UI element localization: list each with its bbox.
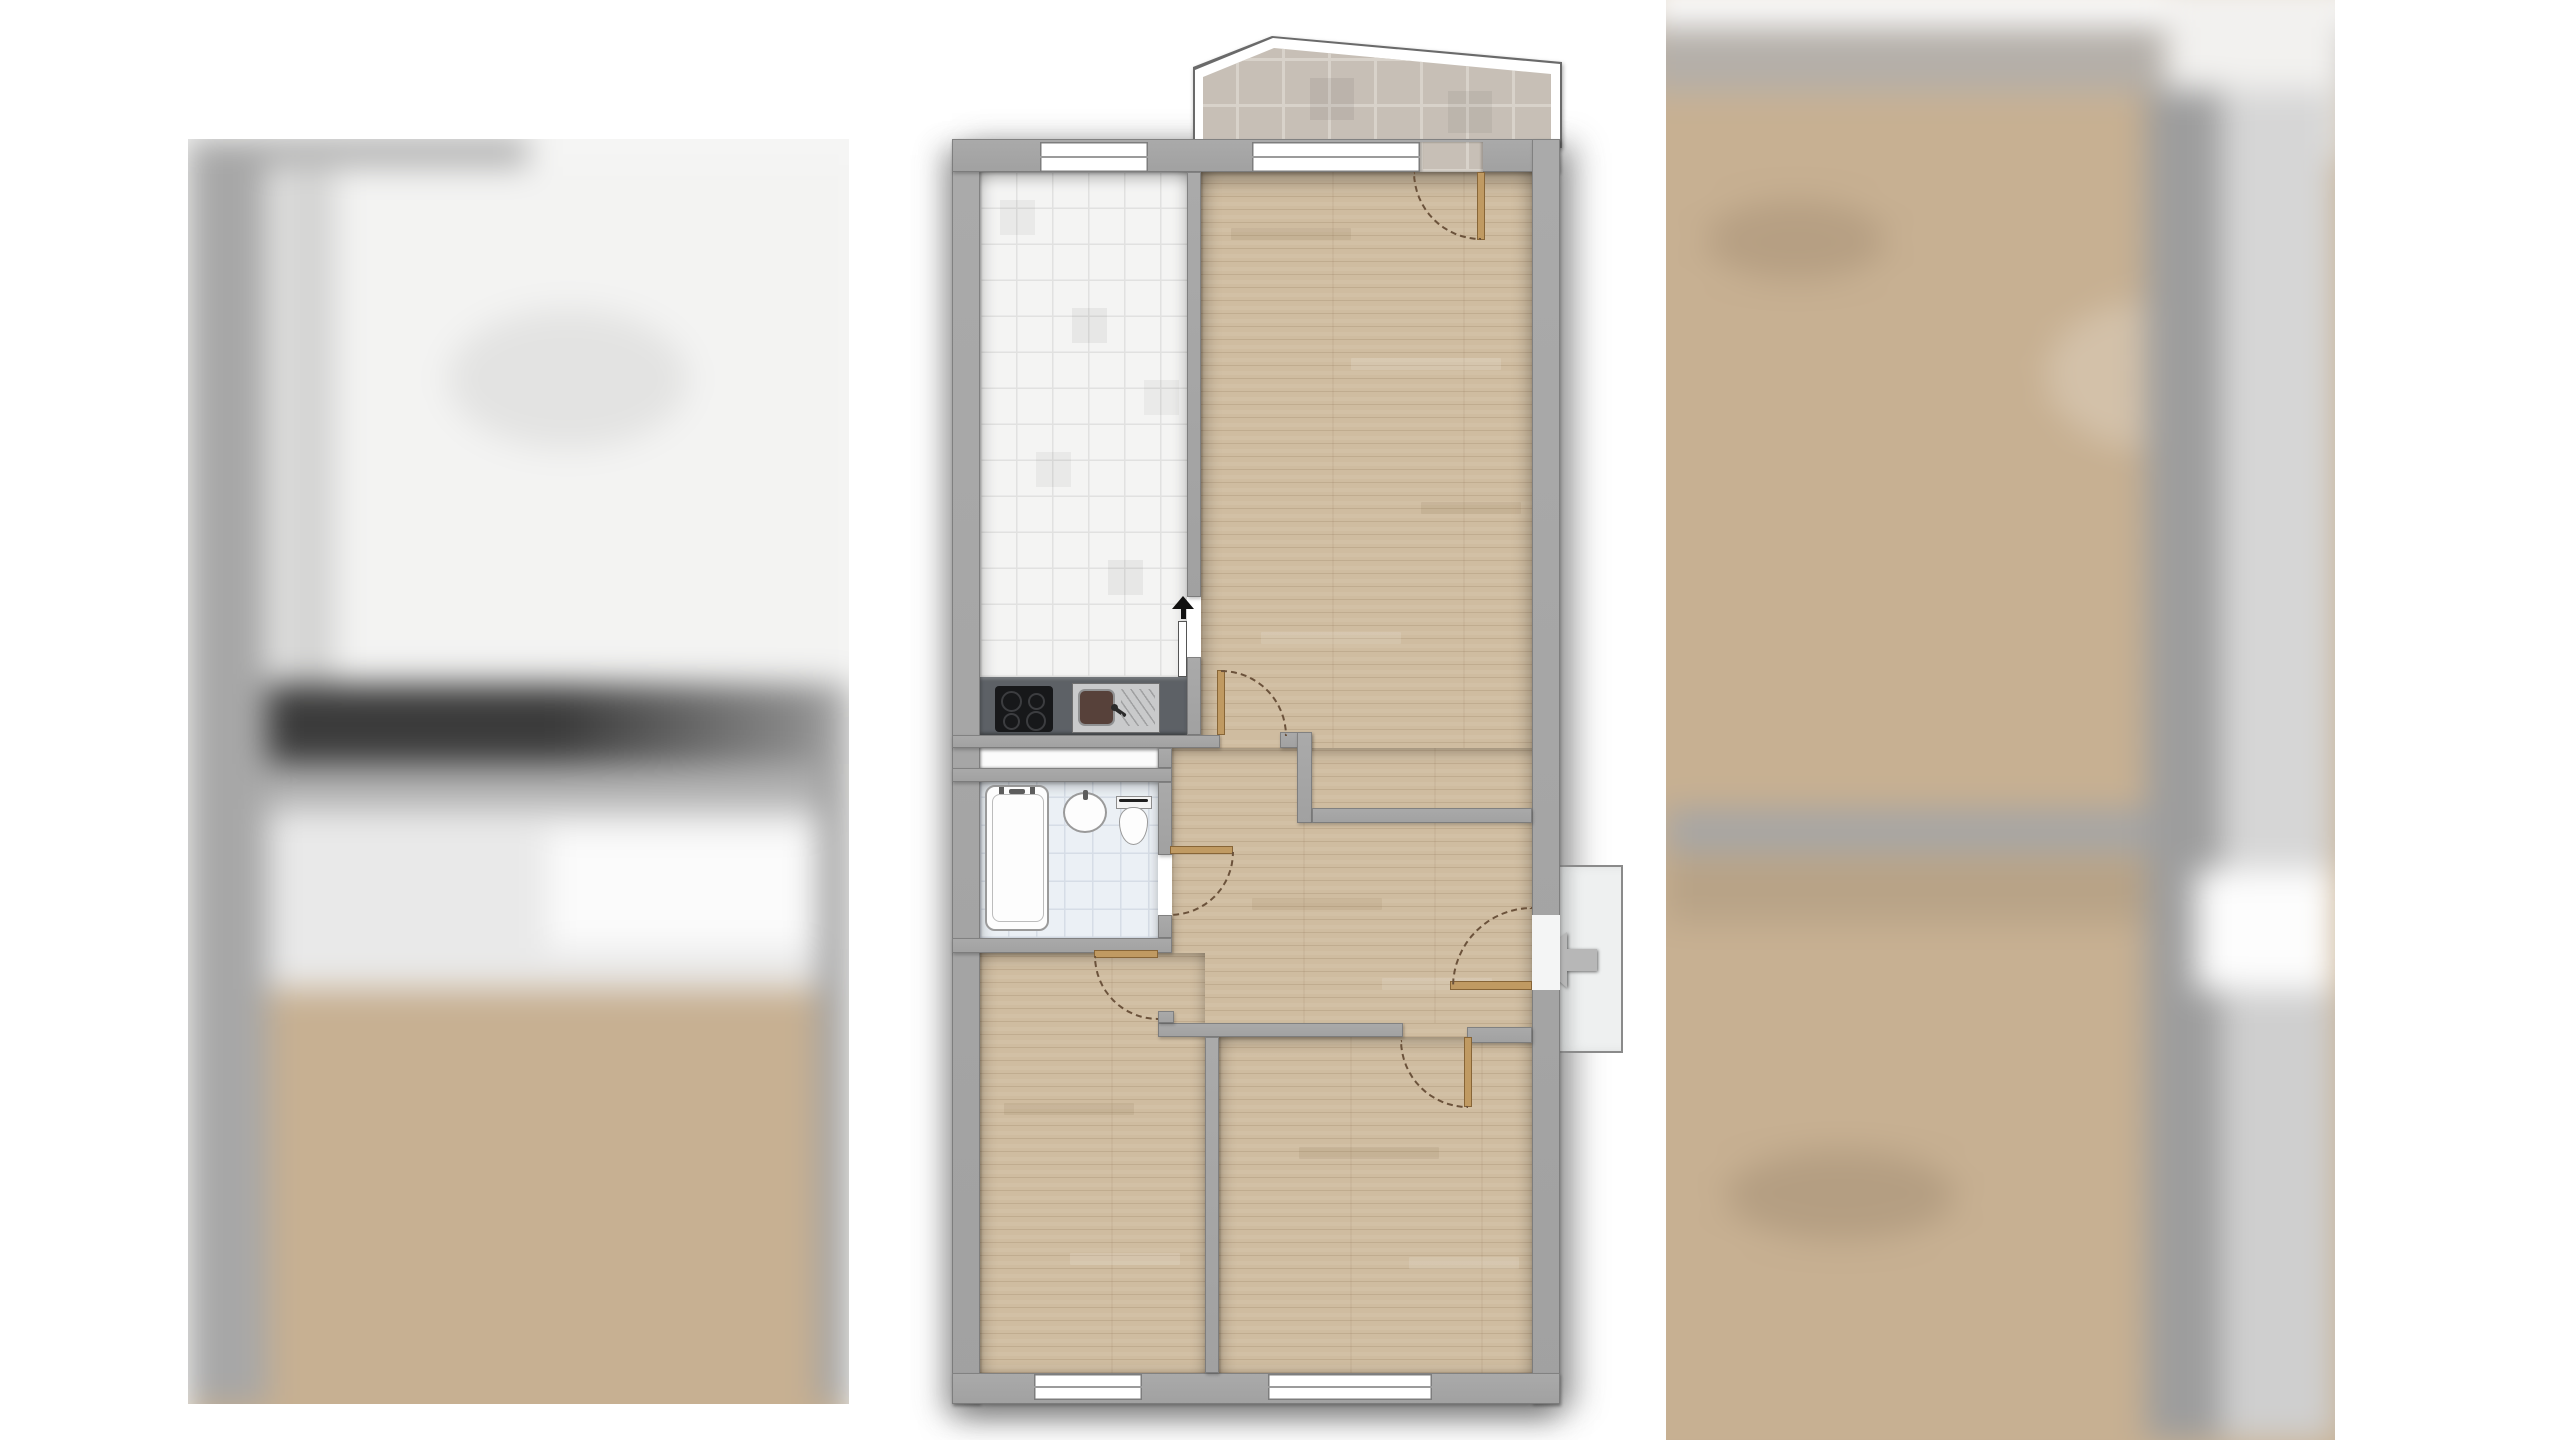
kitchen-counter <box>980 677 1187 735</box>
blur-shape <box>1706 200 1886 280</box>
wall-bottom-rooms-divider <box>1205 1037 1219 1373</box>
kitchen-tile-accent <box>1108 560 1143 595</box>
window-glass-line <box>1040 156 1148 158</box>
wall-living-step-c <box>1312 808 1532 823</box>
balcony-tile-accent <box>1310 78 1354 120</box>
hallway-floor <box>1172 748 1532 1037</box>
sink-drainer <box>1121 689 1155 726</box>
blur-shape <box>1666 852 2146 922</box>
kitchen-floor <box>980 172 1187 677</box>
room-bottom-left-window <box>1034 1374 1142 1400</box>
blur-shape <box>548 829 818 949</box>
blur-shape <box>188 139 268 1404</box>
balcony-tile-accent <box>1448 91 1492 133</box>
wall-entrance-return <box>1467 1027 1532 1043</box>
sink-faucet-base <box>1111 704 1118 711</box>
bathtub-faucet <box>1009 789 1025 794</box>
blurred-floorplan-preview <box>1666 0 2335 1440</box>
blur-shape <box>203 684 849 764</box>
toilet-tank-line <box>1119 799 1148 802</box>
next-image-thumbnail[interactable] <box>1666 0 2335 1440</box>
kitchen-window <box>1040 142 1148 172</box>
wall-bathroom-right-upper <box>1158 782 1172 855</box>
entrance-door-opening <box>1532 915 1560 990</box>
wood-plank <box>1252 898 1382 910</box>
room-bottom-right-window <box>1268 1374 1432 1400</box>
bathtub-knob <box>1030 787 1035 794</box>
wall-bathroom-top <box>952 768 1172 782</box>
toilet-icon <box>1115 796 1153 846</box>
bathtub-knob <box>999 787 1004 794</box>
kitchen-sliding-door-leaf <box>1178 621 1187 677</box>
wall-living-step-b <box>1297 732 1312 823</box>
burner <box>1003 713 1020 730</box>
cooktop-icon <box>995 686 1053 732</box>
bathtub-icon <box>985 785 1049 931</box>
blur-shape <box>2196 870 2335 990</box>
blur-shape <box>188 989 849 1404</box>
wall-niche-stub <box>1158 748 1172 768</box>
window-glass-line <box>1268 1386 1432 1388</box>
wood-plank <box>1351 358 1501 370</box>
wall-hallway-bottom <box>1158 1023 1403 1037</box>
blur-shape <box>2221 990 2335 1440</box>
burner <box>1001 691 1022 712</box>
blur-shape <box>818 684 849 1404</box>
burner <box>1026 711 1046 731</box>
blur-shape <box>188 764 849 809</box>
sliding-door-arrow-stem <box>1181 608 1186 619</box>
window-glass-line <box>1034 1386 1142 1388</box>
bathtub-inner <box>992 794 1044 922</box>
kitchen-tile-accent <box>1000 200 1035 235</box>
kitchen-tile-accent <box>1144 380 1179 415</box>
wall-kitchen-divider-stub <box>1187 657 1201 735</box>
wood-plank <box>1299 1147 1439 1159</box>
blur-shape <box>1726 1150 1956 1240</box>
wall-hallway-bottom-notch <box>1158 1011 1174 1023</box>
living-room-doorway-floor <box>1220 735 1280 748</box>
room-bottom-right-floor <box>1219 1037 1532 1373</box>
kitchen-tile-accent <box>1036 452 1071 487</box>
wall-under-counter <box>952 735 1220 748</box>
kitchen-sink-icon <box>1072 683 1160 733</box>
washbasin-icon <box>1063 792 1107 833</box>
blur-shape <box>448 309 688 449</box>
wood-plank <box>1409 1257 1519 1269</box>
blur-shape <box>1666 810 2166 852</box>
window-glass-line <box>1252 156 1420 158</box>
washbasin-faucet <box>1083 790 1088 800</box>
room-bottom-right-doorway-floor <box>1403 1023 1467 1037</box>
toilet-bowl <box>1119 807 1148 845</box>
wall-right <box>1532 139 1560 1404</box>
wood-plank <box>1261 632 1401 644</box>
blur-shape <box>283 169 335 689</box>
wall-kitchen-divider <box>1187 172 1201 597</box>
gallery-stage <box>0 0 2560 1440</box>
burner <box>1028 693 1045 710</box>
wood-plank <box>1421 502 1521 514</box>
blur-shape <box>2146 90 2221 1440</box>
wood-plank <box>1231 228 1351 240</box>
blurred-floorplan-preview <box>188 139 849 1404</box>
balcony-door-opening <box>1420 142 1483 172</box>
sink-basin <box>1078 689 1115 726</box>
previous-image-thumbnail[interactable] <box>188 139 849 1404</box>
kitchen-tile-accent <box>1072 308 1107 343</box>
wall-bathroom-right-lower <box>1158 915 1172 938</box>
balcony <box>1190 33 1565 153</box>
living-room-window <box>1252 142 1420 172</box>
wood-plank <box>1004 1103 1134 1115</box>
wood-plank <box>1070 1253 1180 1265</box>
niche <box>980 748 1158 768</box>
